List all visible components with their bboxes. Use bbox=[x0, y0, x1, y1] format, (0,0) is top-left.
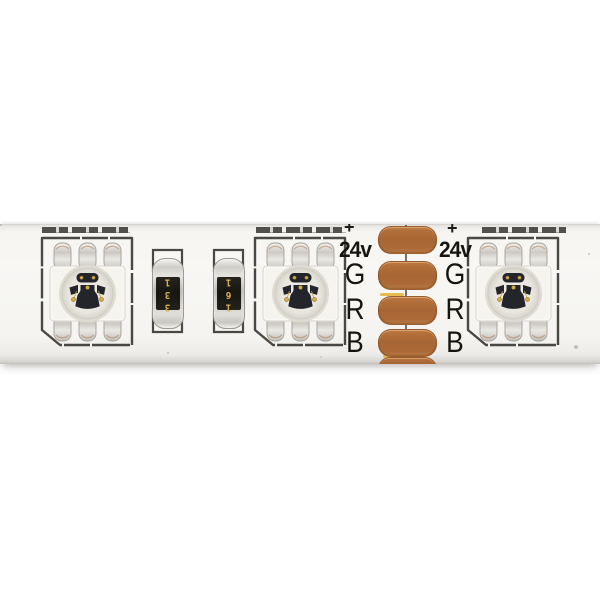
pad-label-blue: B bbox=[437, 328, 474, 358]
pad-labels-left: 24v G R B bbox=[334, 224, 376, 364]
resistor-code-window: 331 bbox=[156, 277, 180, 310]
resistor-2: 161 bbox=[207, 247, 250, 335]
silkscreen-top-dashes bbox=[42, 227, 130, 233]
resistor-body: 161 bbox=[213, 258, 245, 329]
rgb-led-1 bbox=[40, 235, 135, 349]
product-photo-canvas: { "labels": { "voltage": "24v", "green":… bbox=[0, 0, 600, 600]
silkscreen-top-dashes bbox=[482, 227, 566, 233]
rgb-led-3 bbox=[466, 235, 561, 349]
solder-pad-next-partial bbox=[378, 357, 437, 364]
led-strip-pcb: 331 161 + + 24v G R B 24v G R B bbox=[0, 224, 600, 364]
pad-label-blue: B bbox=[337, 328, 374, 358]
solder-pad-g bbox=[378, 261, 437, 290]
pad-label-green: G bbox=[437, 260, 474, 290]
resistor-body: 331 bbox=[152, 258, 184, 329]
rgb-led-5050-package-icon bbox=[40, 235, 135, 349]
rgb-led-5050-package-icon bbox=[466, 235, 561, 349]
resistor-code-label: 161 bbox=[224, 275, 234, 313]
pcb-speckles bbox=[0, 224, 2, 226]
pad-labels-right: 24v G R B bbox=[434, 224, 476, 364]
resistor-code-window: 161 bbox=[217, 277, 241, 310]
pad-label-red: R bbox=[437, 295, 474, 325]
solder-pad-b bbox=[378, 329, 437, 357]
pad-label-red: R bbox=[337, 295, 374, 325]
solder-pad-r bbox=[378, 296, 437, 325]
resistor-1: 331 bbox=[146, 247, 189, 335]
pad-label-green: G bbox=[337, 260, 374, 290]
solder-pad-24v bbox=[378, 226, 437, 254]
silkscreen-top-dashes bbox=[256, 227, 346, 233]
resistor-code-label: 331 bbox=[163, 275, 173, 313]
